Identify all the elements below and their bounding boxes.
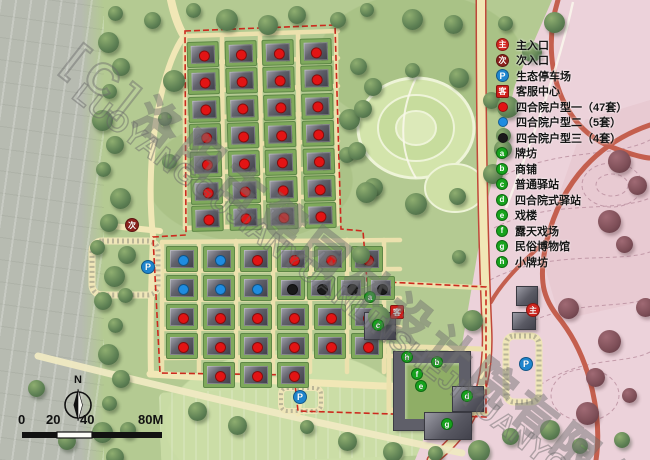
legend-item-b: b商铺 [496, 161, 627, 177]
legend-label: 普通驿站 [515, 176, 559, 192]
tree-icon [383, 442, 403, 460]
tree-icon [444, 15, 463, 34]
courtyard-house-1 [240, 333, 272, 359]
legend-label: 戏楼 [515, 207, 537, 223]
tree-icon [498, 16, 513, 31]
courtyard-house-1 [240, 304, 272, 330]
house-type-dot-3 [317, 284, 328, 295]
scale-label-20: 20 [46, 412, 60, 427]
legend: 主主入口次次入口P生态停车场客客服中心四合院户型一（47套）四合院户型二（5套）… [496, 37, 627, 270]
tree-icon [502, 428, 519, 445]
house-type-dot-1 [289, 313, 300, 324]
legend-item-h: h小牌坊 [496, 254, 627, 270]
tree-icon [348, 142, 366, 160]
house-type-dot-1 [326, 313, 337, 324]
tree-icon [540, 420, 560, 440]
tree-icon [300, 420, 314, 434]
courtyard-house-1 [203, 362, 235, 388]
tree-icon [94, 292, 112, 310]
courtyard-house-2 [203, 246, 235, 272]
house-type-2-icon [498, 117, 508, 127]
courtyard-house-3 [277, 276, 305, 300]
tree-icon [118, 246, 136, 264]
house-type-dot-1 [215, 371, 226, 382]
eco-parking-icon: P [496, 69, 509, 82]
legend-label: 次入口 [516, 52, 549, 68]
house-type-dot-1 [178, 342, 189, 353]
house-type-dot-1 [289, 371, 300, 382]
letter-h-icon: h [496, 256, 508, 268]
tree-icon [100, 214, 118, 232]
north-label: N [74, 374, 82, 386]
service-center-marker: 客 [390, 305, 404, 319]
tree-icon [144, 12, 161, 29]
legend-label: 商铺 [515, 161, 537, 177]
tree-icon [186, 3, 201, 18]
tree-icon [354, 100, 372, 118]
house-type-dot-1 [252, 313, 263, 324]
courtyard-house-1 [277, 246, 309, 272]
letter-e-icon: e [496, 209, 508, 221]
tree-icon [92, 110, 113, 131]
letter-b-icon: b [496, 163, 508, 175]
tree-icon [338, 432, 357, 451]
scale-bar: 0 20 40 80M [14, 412, 174, 446]
tree-icon [405, 193, 427, 215]
poi-marker-a: a [364, 291, 376, 303]
legend-item-house-type-3: 四合院户型三（4套） [496, 130, 627, 146]
tree-icon [104, 266, 125, 287]
tree-icon [102, 396, 117, 411]
tree-icon [162, 154, 177, 169]
scale-label-80m: 80M [138, 412, 163, 427]
house-type-dot-1 [178, 313, 189, 324]
legend-item-eco-parking: P生态停车场 [496, 68, 627, 84]
tree-icon [452, 250, 466, 264]
legend-label: 四合院式驿站 [515, 192, 581, 208]
legend-item-e: e戏楼 [496, 208, 627, 224]
tree-icon [628, 176, 647, 195]
house-type-dot-3 [347, 284, 358, 295]
tree-icon [216, 9, 238, 31]
tree-icon [118, 288, 133, 303]
legend-label: 生态停车场 [516, 68, 571, 84]
house-type-dot-2 [178, 284, 189, 295]
poi-marker-d: d [461, 390, 473, 402]
tree-icon [586, 368, 605, 387]
letter-f-icon: f [496, 225, 508, 237]
tree-icon [108, 6, 123, 21]
courtyard-house-3 [307, 276, 335, 300]
legend-label: 民俗博物馆 [515, 238, 570, 254]
poi-marker-c: c [372, 319, 384, 331]
poi-marker-b: b [431, 356, 443, 368]
parking-marker: P [141, 260, 155, 274]
house-type-dot-1 [215, 342, 226, 353]
legend-item-f: f露天戏场 [496, 223, 627, 239]
scale-label-0: 0 [18, 412, 25, 427]
secondary-entrance-marker: 次 [125, 218, 139, 232]
house-type-dot-1 [252, 371, 263, 382]
tree-icon [356, 182, 377, 203]
tree-icon [258, 15, 278, 35]
legend-label: 四合院户型二（5套） [516, 114, 621, 130]
tree-icon [350, 58, 367, 75]
parking-marker: P [293, 390, 307, 404]
house-type-dot-1 [363, 342, 374, 353]
poi-marker-g: g [441, 418, 453, 430]
courtyard-house-1 [277, 304, 309, 330]
courtyard-house-2 [203, 275, 235, 301]
tree-icon [576, 402, 599, 425]
tree-icon [614, 432, 630, 448]
tree-icon [106, 136, 124, 154]
letter-c-icon: c [496, 178, 508, 190]
tree-icon [112, 58, 130, 76]
legend-label: 牌坊 [515, 145, 537, 161]
courtyard-house-2 [166, 246, 198, 272]
courtyard-house-1 [314, 246, 346, 272]
legend-item-main-entrance: 主主入口 [496, 37, 627, 53]
tree-icon [360, 3, 374, 17]
poi-marker-h: h [401, 351, 413, 363]
courtyard-house-1 [203, 304, 235, 330]
courtyard-house-1 [203, 333, 235, 359]
legend-item-a: a牌坊 [496, 146, 627, 162]
courtyard-house-2 [166, 275, 198, 301]
tree-icon [636, 298, 650, 317]
house-type-dot-2 [215, 255, 226, 266]
legend-item-secondary-entrance: 次次入口 [496, 53, 627, 69]
tree-icon [622, 388, 637, 403]
tree-icon [96, 162, 111, 177]
tree-icon [112, 370, 130, 388]
legend-item-g: g民俗博物馆 [496, 239, 627, 255]
letter-a-icon: a [496, 147, 508, 159]
scale-label-40: 40 [80, 412, 94, 427]
poi-marker-f: f [411, 368, 423, 380]
legend-label: 客服中心 [516, 83, 560, 99]
main-entrance-icon: 主 [496, 38, 509, 51]
tree-icon [402, 9, 423, 30]
house-type-3-icon [498, 133, 508, 143]
house-type-dot-1 [326, 342, 337, 353]
tree-icon [158, 112, 172, 126]
poi-marker-e: e [415, 380, 427, 392]
house-type-dot-1 [252, 342, 263, 353]
house-type-dot-2 [252, 284, 263, 295]
tree-icon [544, 12, 565, 33]
legend-item-service-center: 客客服中心 [496, 84, 627, 100]
courtyard-house-3 [337, 276, 365, 300]
secondary-entrance-icon: 次 [496, 54, 509, 67]
tree-icon [405, 63, 420, 78]
house-type-dot-3 [287, 284, 298, 295]
service-center-icon: 客 [496, 85, 509, 98]
courtyard-house-1 [240, 246, 272, 272]
tree-icon [558, 298, 579, 319]
tree-icon [98, 344, 119, 365]
legend-label: 露天戏场 [515, 223, 559, 239]
legend-item-d: d四合院式驿站 [496, 192, 627, 208]
site-plan-canvas: 次主客PPPachbfedg 主主入口次次入口P生态停车场客客服中心四合院户型一… [0, 0, 650, 460]
house-type-dot-1 [326, 255, 337, 266]
legend-label: 小牌坊 [515, 254, 548, 270]
main-entrance-marker: 主 [526, 303, 540, 317]
tree-icon [352, 246, 370, 264]
courtyard-house-2 [240, 275, 272, 301]
tree-icon [468, 440, 490, 460]
courtyard-house-1 [277, 362, 309, 388]
tree-icon [330, 12, 346, 28]
tree-icon [462, 310, 483, 331]
legend-item-house-type-1: 四合院户型一（47套） [496, 99, 627, 115]
tree-icon [428, 446, 443, 460]
letter-d-icon: d [496, 194, 508, 206]
tree-icon [228, 416, 247, 435]
tree-icon [572, 438, 588, 454]
legend-label: 四合院户型一（47套） [516, 99, 627, 115]
letter-g-icon: g [496, 240, 508, 252]
house-type-dot-2 [178, 255, 189, 266]
courtyard-house-1 [240, 362, 272, 388]
tree-icon [163, 70, 185, 92]
legend-label: 主入口 [516, 37, 549, 53]
legend-label: 四合院户型三（4套） [516, 130, 621, 146]
tree-icon [188, 402, 207, 421]
courtyard-house-1 [166, 333, 198, 359]
house-type-1-icon [498, 102, 508, 112]
tree-icon [288, 6, 306, 24]
house-type-dot-1 [252, 255, 263, 266]
courtyard-house-1 [166, 304, 198, 330]
tree-icon [90, 240, 105, 255]
courtyard-house-1 [277, 333, 309, 359]
courtyard-house-1 [314, 304, 346, 330]
tree-icon [364, 78, 382, 96]
parking-marker: P [519, 357, 533, 371]
house-type-dot-1 [289, 342, 300, 353]
legend-item-house-type-2: 四合院户型二（5套） [496, 115, 627, 131]
tree-icon [98, 32, 119, 53]
house-type-dot-1 [289, 255, 300, 266]
house-type-dot-2 [215, 284, 226, 295]
house-type-dot-1 [215, 313, 226, 324]
tree-icon [28, 380, 45, 397]
house-type-dot-3 [377, 284, 388, 295]
tree-icon [110, 188, 131, 209]
tree-icon [106, 448, 124, 460]
tree-icon [108, 318, 123, 333]
tree-icon [102, 84, 117, 99]
legend-item-c: c普通驿站 [496, 177, 627, 193]
courtyard-house-1 [314, 333, 346, 359]
tree-icon [598, 330, 621, 353]
